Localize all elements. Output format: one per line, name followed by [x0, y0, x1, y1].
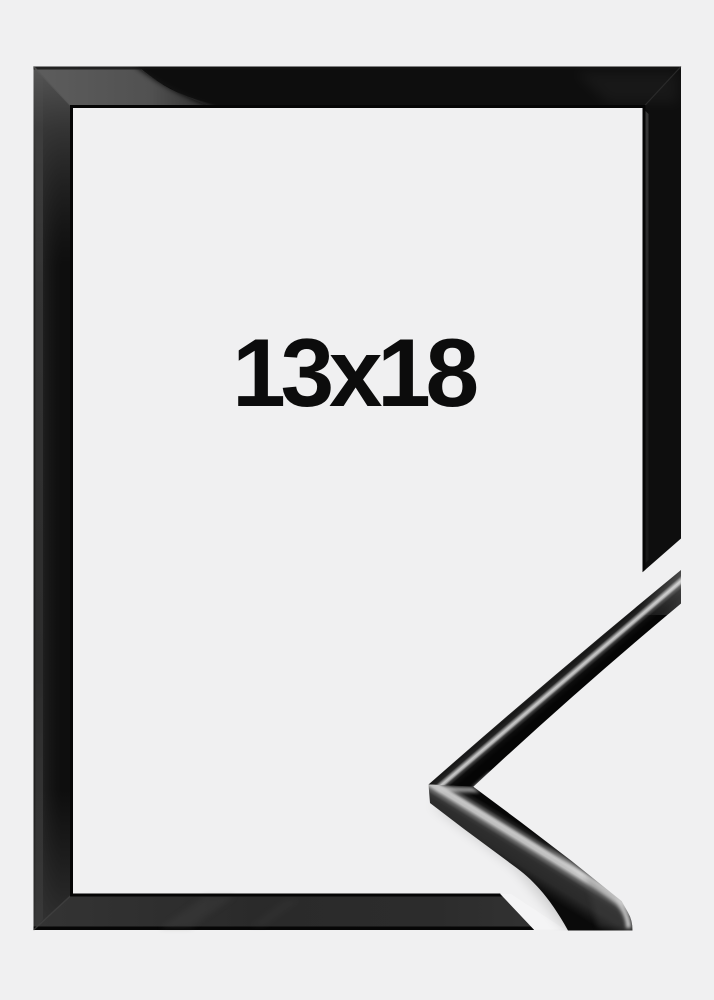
svg-text:13x18: 13x18 [232, 320, 476, 427]
